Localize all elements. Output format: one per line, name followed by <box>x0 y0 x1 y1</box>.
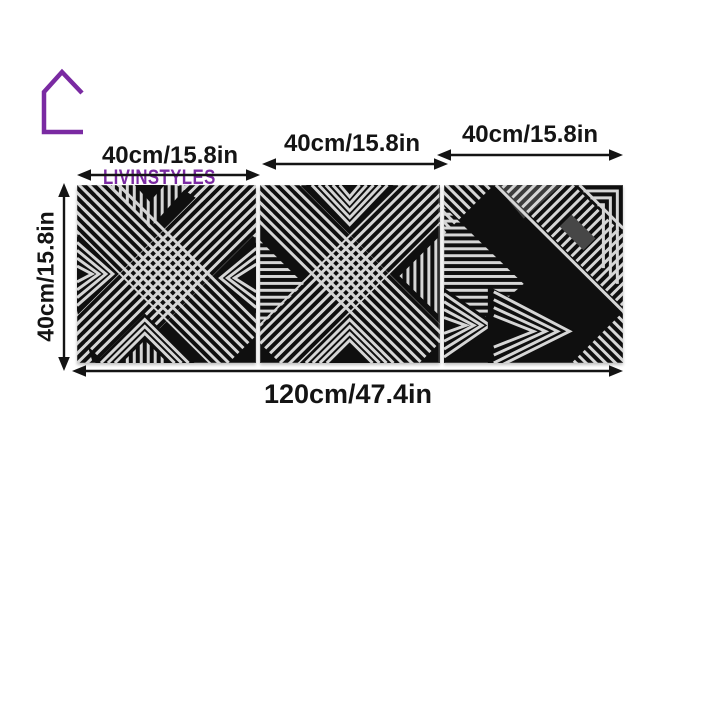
total-width-arrow <box>72 364 623 378</box>
total-width-label: 120cm/47.4in <box>198 379 498 410</box>
art-panel-3 <box>444 185 623 363</box>
width-arrow-3 <box>437 148 623 162</box>
brand-logo: LIVINSTYLES <box>40 68 260 138</box>
panel-height-label: 40cm/15.8in <box>33 211 60 341</box>
art-panel-2 <box>260 185 439 363</box>
house-icon <box>40 68 86 136</box>
panel-width-label-2: 40cm/15.8in <box>252 130 452 158</box>
wall-art-triptych <box>77 185 623 363</box>
panel-width-label-1: 40cm/15.8in <box>70 142 270 170</box>
width-arrow-2 <box>262 157 448 171</box>
panel-width-label-3: 40cm/15.8in <box>430 121 630 149</box>
width-arrow-1 <box>77 168 260 182</box>
product-dimension-diagram: LIVINSTYLES 40cm/15.8in 40cm/15.8in 40cm… <box>0 0 720 720</box>
art-panel-1 <box>77 185 256 363</box>
height-arrow <box>57 183 71 371</box>
